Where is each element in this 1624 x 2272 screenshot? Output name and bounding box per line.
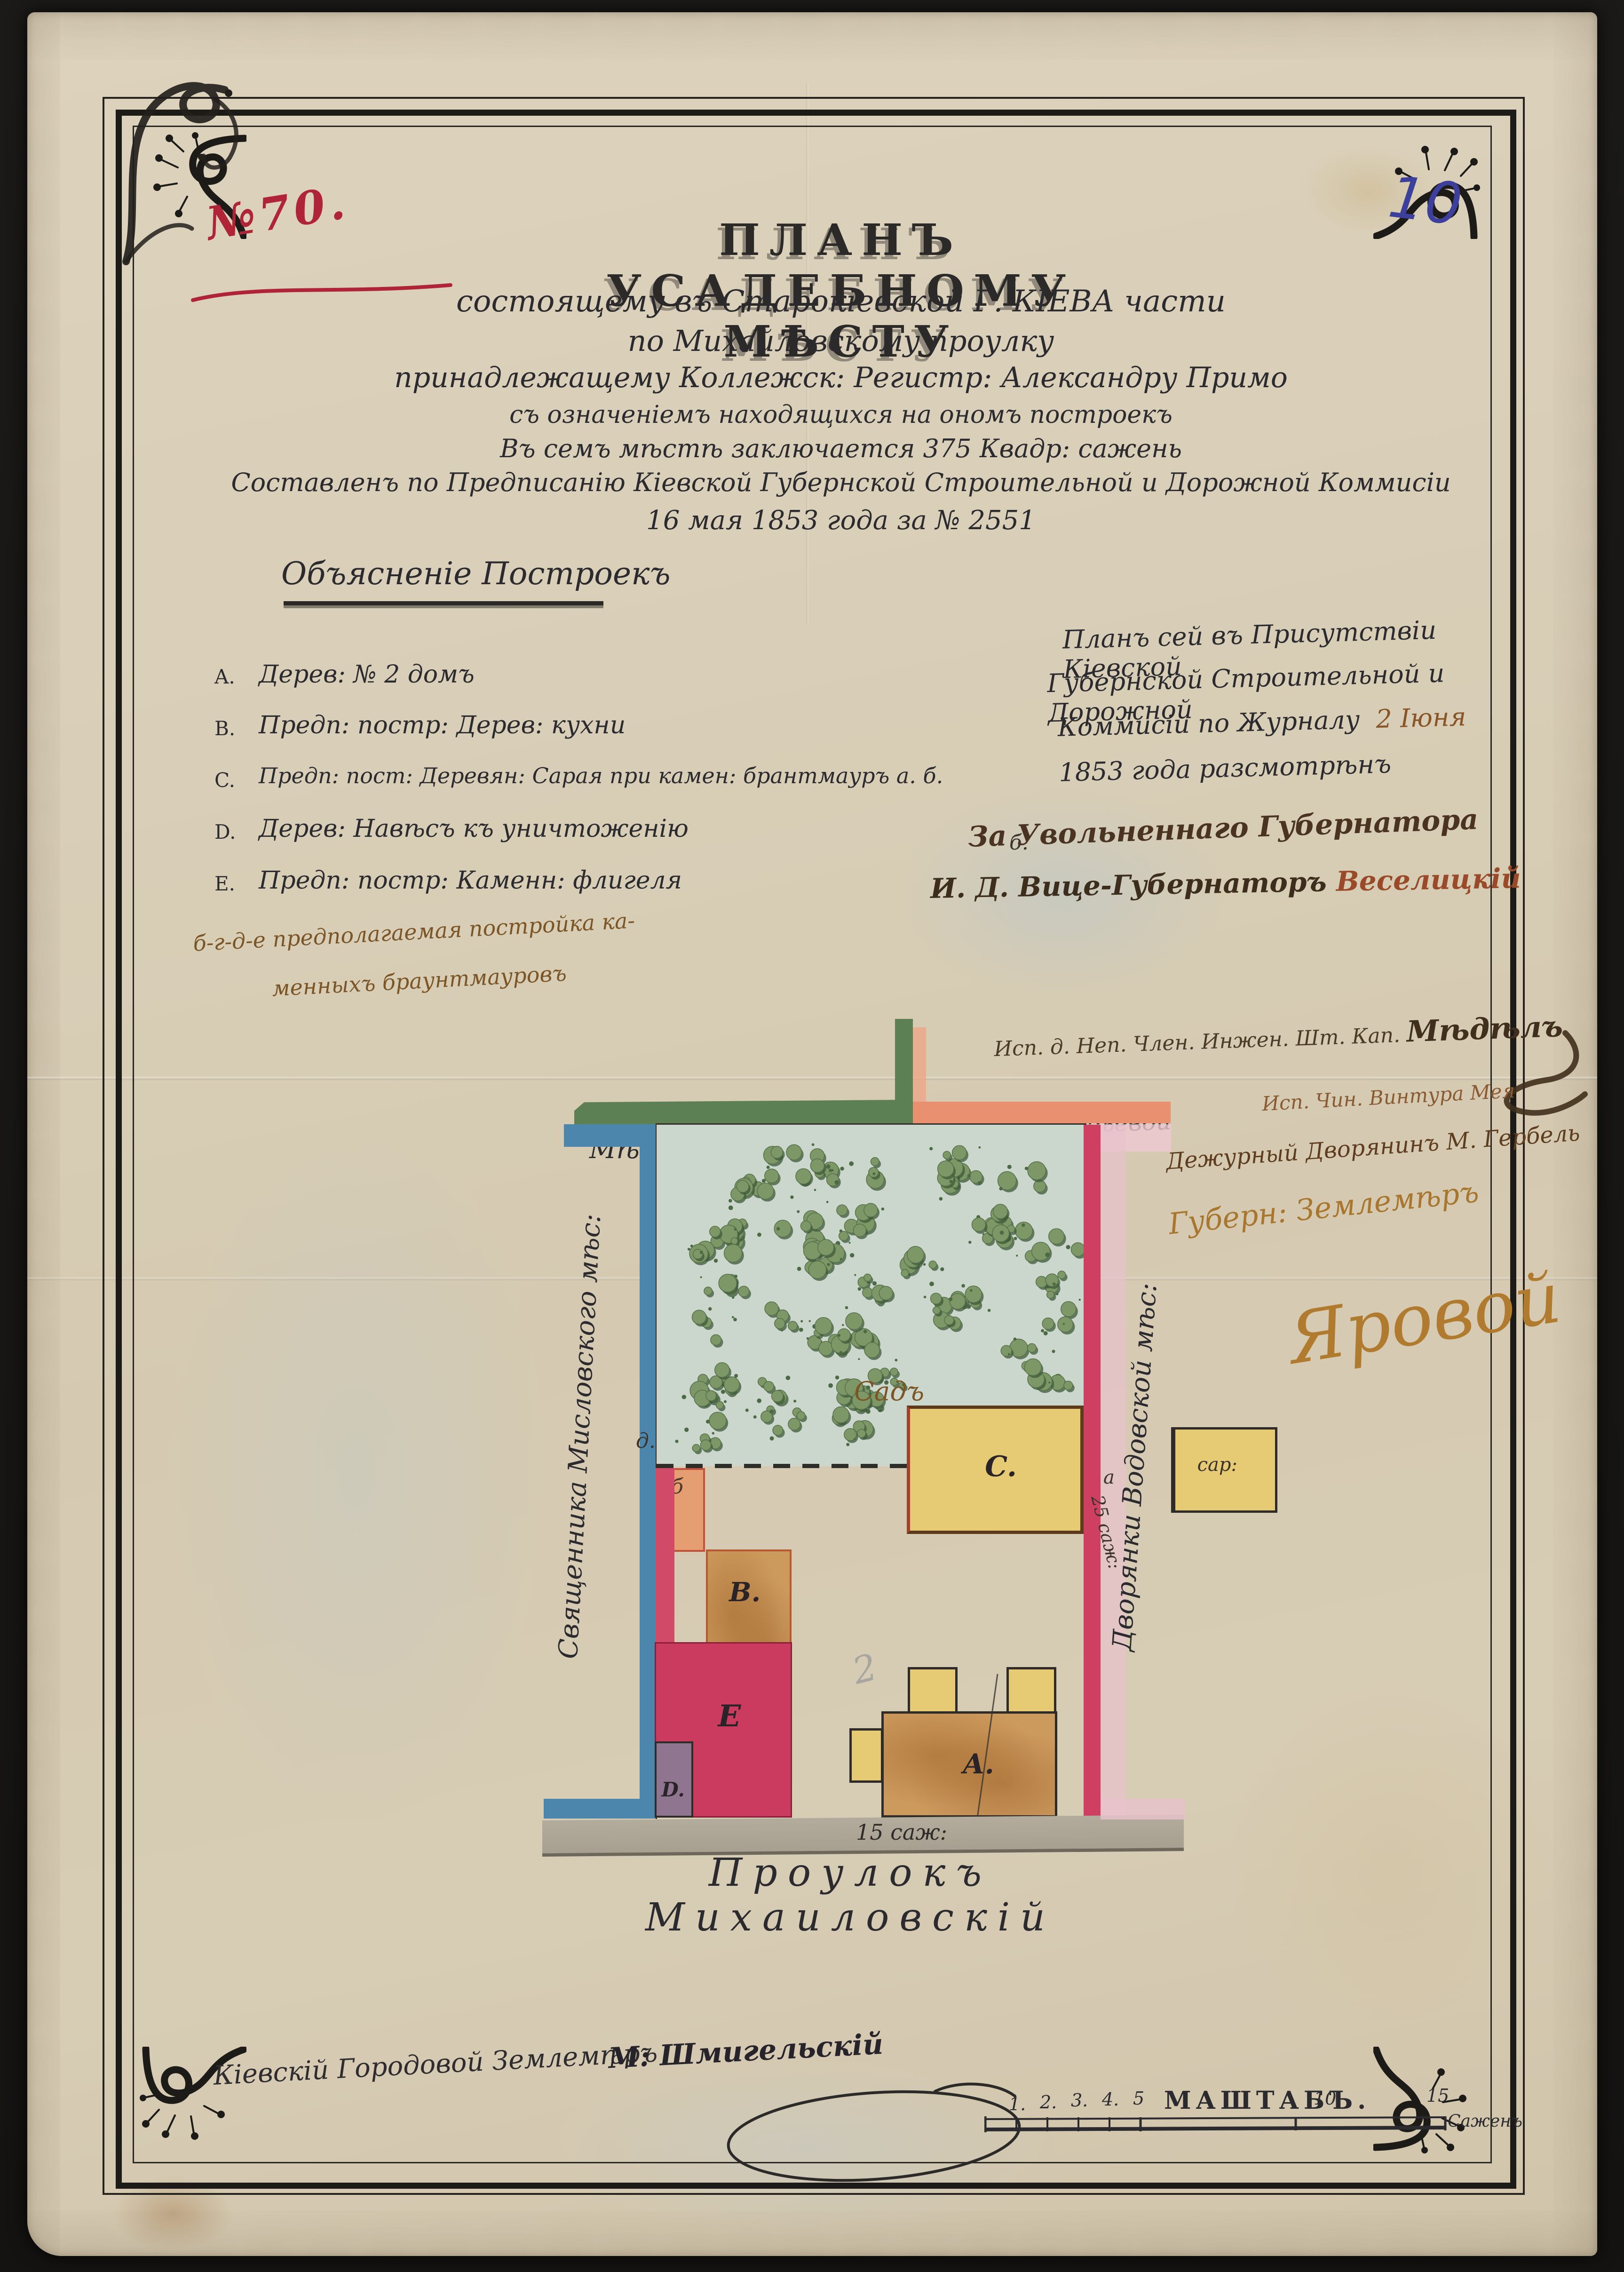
building-d: D. [655,1741,693,1818]
building-e-label: E [718,1699,741,1734]
scanned-document: №70. 10 ПЛАНЪ УСАДЕБНОМУ МѢСТУ состоящем… [0,0,1624,2272]
garden-label: Садъ [854,1376,924,1407]
signature-flourish-icon [1368,1024,1589,1132]
garden-dashed-boundary [657,1464,907,1468]
subtitle-line: принадлежащему Коллежск: Регистр: Алекса… [300,361,1382,394]
city-surveyor-title: Кіевскій Городовой Землемѣръ [213,2037,658,2091]
scale-unit: Саженъ [1448,2112,1522,2131]
building-d-label: D. [661,1778,685,1801]
boundary-salmon-horizontal [913,1102,1171,1123]
legend-item-text: Предп: пост: Деревян: Сарая при камен: б… [259,763,1035,788]
shed-label: сар: [1197,1454,1237,1476]
page-number: 10 [1385,163,1466,238]
approval-line: 1853 года разсмотрѣнъ [1059,749,1392,787]
legend-item-letter: A. [214,665,235,688]
scale-bar: 1. 2. 3. 4. 5 МАШТАБЪ. 10 15 Саженъ [984,2094,1469,2145]
scale-title: МАШТАБЪ. [1164,2086,1370,2115]
building-b-label: B. [729,1577,761,1608]
street-label: Проулокъ Михаиловскій [559,1851,1142,1940]
legend-heading-rule [284,601,603,605]
building-a-porch-top-left [908,1667,958,1714]
stain [112,2176,234,2251]
vice-governor-signature: Веселицкій [1336,862,1521,898]
approval-date: 2 Іюня [1376,702,1466,734]
building-c: C. [907,1406,1084,1534]
stain [168,1118,545,1823]
boundary-blue-foot [544,1799,657,1819]
legend-item-letter: C. [214,769,235,792]
legend-item-letter: D. [214,820,236,843]
firewall-strip [656,1468,674,1643]
subtitle-line: Составленъ по Предписанію Кіевской Губер… [206,468,1476,497]
width-dimension: 15 саж: [856,1819,947,1845]
fold-crease [27,1076,1597,1080]
building-a-porch-left [849,1728,883,1783]
deputy-governor-line: За Увольненнаго Губернатора [967,803,1479,854]
stain [1227,1682,1556,2058]
boundary-green-horizontal [574,1100,903,1124]
legend-item-text: Дерев: № 2 домъ [259,660,475,689]
subtitle-line: состоящему въ Старокіевской Г. КІЕВА час… [394,284,1288,319]
vice-governor-line: И. Д. Вице-Губернаторъ Веселицкій [930,862,1521,905]
scale-tick-label: 2. [1040,2092,1057,2113]
legend-item-text: Предп: постр: Каменн: флигеля [259,866,682,895]
scale-tick-label: 1. [1009,2094,1026,2114]
legend-heading: Объясненіе Построекъ [281,556,670,592]
building-a-label: А. [962,1748,994,1780]
scale-tick-label: 4. [1102,2089,1119,2110]
legend-item-letter: E. [214,872,235,895]
approval-block: Планъ сей въ Присутствіи Кіевской Губерн… [1038,612,1537,626]
city-surveyor-name: М: Шмигельскій [608,2028,884,2075]
scale-tick-label: 15 [1426,2085,1449,2106]
subtitle-line: по Михайловскому проулку [394,324,1288,358]
building-c-label: C. [985,1450,1017,1483]
gub-surveyor-title: Губерн: Землемѣръ [1167,1175,1481,1241]
scale-tick-label: 3. [1071,2090,1088,2111]
legend-item-text: Предп: постр: Дерев: кухни [259,711,626,739]
building-a: А. [881,1711,1057,1818]
legend-item-text: Дерев: Навѣсъ къ уничтоженію [259,815,689,843]
paper-sheet: №70. 10 ПЛАНЪ УСАДЕБНОМУ МѢСТУ состоящем… [27,12,1597,2256]
boundary-crimson-vertical [1084,1125,1101,1818]
marker-a: а [1103,1467,1115,1488]
marker-d: д. [636,1429,656,1453]
legend-note-line: менныхъ браунтмауровъ [271,961,567,1001]
scale-ruler-icon [984,2115,1455,2134]
subtitle-line: 16 мая 1853 года за № 2551 [394,505,1288,536]
street-pink-end [1101,1799,1185,1819]
building-a-porch-top-right [1006,1667,1056,1714]
neighbor-label-left: Священника Мисловского мѣс: [547,1107,612,1766]
scale-tick-label: 5 [1133,2088,1144,2109]
shed-building: сар: [1171,1427,1277,1513]
scale-tick-label: 10 [1314,2088,1336,2109]
boundary-blue-vertical [640,1124,657,1805]
subtitle-line: съ означеніемъ находящихся на ономъ пост… [394,401,1288,429]
subtitle-line: Въ семъ мѣстѣ заключается 375 Квадр: саж… [394,434,1288,463]
legend-note-line: б-г-д-е предполагаемая постройка ка- [192,907,635,956]
legend-item-letter: B. [214,717,235,740]
gub-surveyor-signature: Яровой [1283,1257,1566,1381]
